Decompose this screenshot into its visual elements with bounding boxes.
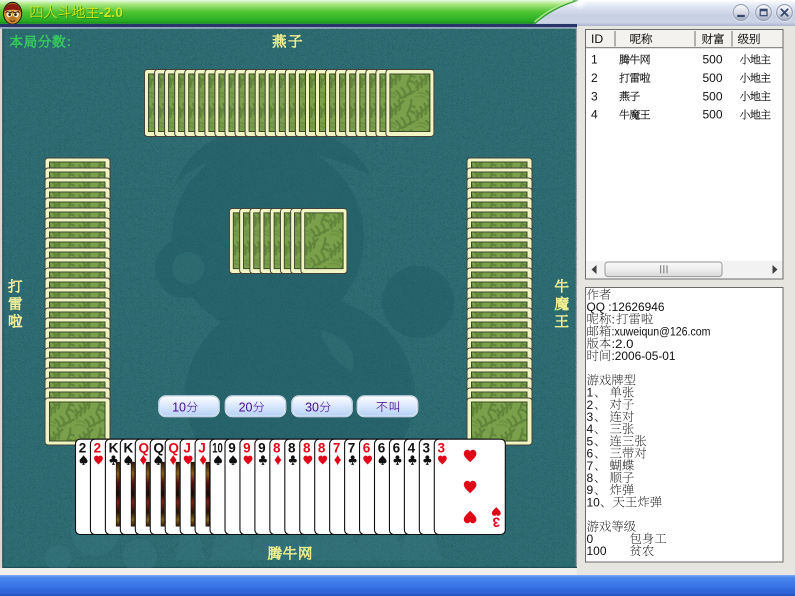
svg-text:500: 500 xyxy=(703,71,723,85)
svg-text:7: 7 xyxy=(333,440,341,455)
svg-text:9: 9 xyxy=(228,440,236,455)
svg-text:ID: ID xyxy=(591,32,603,46)
svg-text:Q: Q xyxy=(153,440,164,455)
svg-text:10: 10 xyxy=(587,495,601,509)
svg-text:500: 500 xyxy=(703,53,723,67)
svg-text:2: 2 xyxy=(94,440,102,455)
svg-text:3: 3 xyxy=(438,440,446,455)
svg-text:2: 2 xyxy=(79,440,87,455)
svg-text:J: J xyxy=(183,440,191,455)
svg-text:2: 2 xyxy=(591,71,598,85)
svg-text:8: 8 xyxy=(273,440,281,455)
svg-text:K: K xyxy=(109,440,119,455)
svg-text:20: 20 xyxy=(239,400,253,414)
svg-text:500: 500 xyxy=(703,108,723,122)
svg-text:8: 8 xyxy=(288,440,296,455)
svg-text:3: 3 xyxy=(423,440,431,455)
svg-text:K: K xyxy=(124,440,134,455)
svg-text:1: 1 xyxy=(591,53,598,67)
svg-text:10: 10 xyxy=(212,440,223,455)
svg-text:8: 8 xyxy=(303,440,311,455)
svg-text::2006-05-01: :2006-05-01 xyxy=(612,349,676,363)
svg-text:9: 9 xyxy=(243,440,251,455)
svg-text::: : xyxy=(67,33,72,49)
svg-text:6: 6 xyxy=(363,440,371,455)
svg-text:6: 6 xyxy=(378,440,386,455)
svg-text:8: 8 xyxy=(318,440,326,455)
svg-text:9: 9 xyxy=(258,440,266,455)
svg-text:500: 500 xyxy=(703,89,723,103)
svg-text:-2.0: -2.0 xyxy=(99,5,123,20)
svg-text:4: 4 xyxy=(591,108,598,122)
svg-text:100: 100 xyxy=(587,544,607,558)
svg-text:Q: Q xyxy=(139,440,150,455)
svg-text:4: 4 xyxy=(408,440,416,455)
svg-text:J: J xyxy=(198,440,206,455)
svg-text:10: 10 xyxy=(172,400,186,414)
svg-text:Q: Q xyxy=(168,440,179,455)
svg-text:3: 3 xyxy=(492,515,500,530)
svg-text:QQ :12626946: QQ :12626946 xyxy=(587,300,665,314)
svg-text:3: 3 xyxy=(591,89,598,103)
svg-text:6: 6 xyxy=(393,440,401,455)
svg-text:7: 7 xyxy=(348,440,356,455)
svg-text:30: 30 xyxy=(305,400,319,414)
